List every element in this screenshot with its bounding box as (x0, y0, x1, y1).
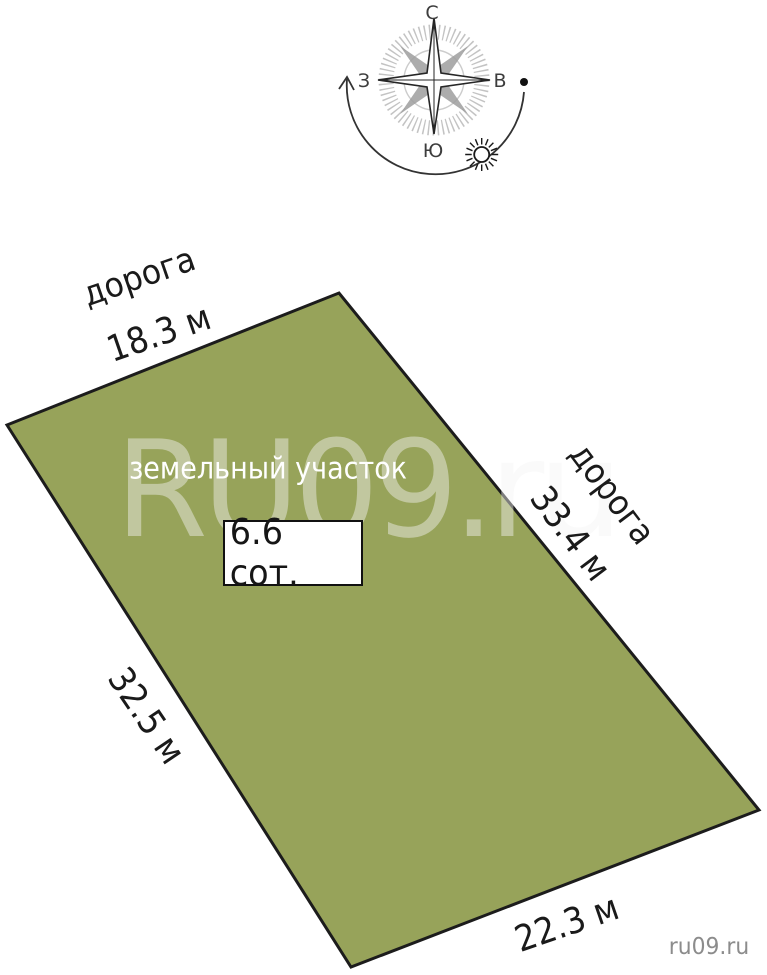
land-plot-diagram: С Ю З В RU09.ru дорога 18.3 м земельный … (0, 0, 767, 975)
sun-icon (465, 138, 498, 171)
site-credit: ru09.ru (669, 934, 749, 960)
area-value: 6.6 сот. (230, 512, 356, 594)
compass-rose-icon: С Ю З В (339, 2, 528, 174)
east-dot-icon (520, 78, 528, 86)
plot-title: земельный участок (129, 452, 407, 487)
area-box: 6.6 сот. (223, 520, 363, 586)
compass-south-label: Ю (423, 140, 444, 162)
compass-axis-lines (378, 18, 490, 134)
compass-west-label: З (358, 70, 370, 92)
land-plot-shape (7, 293, 759, 967)
compass-north-label: С (425, 2, 438, 24)
compass-east-label: В (493, 70, 506, 92)
